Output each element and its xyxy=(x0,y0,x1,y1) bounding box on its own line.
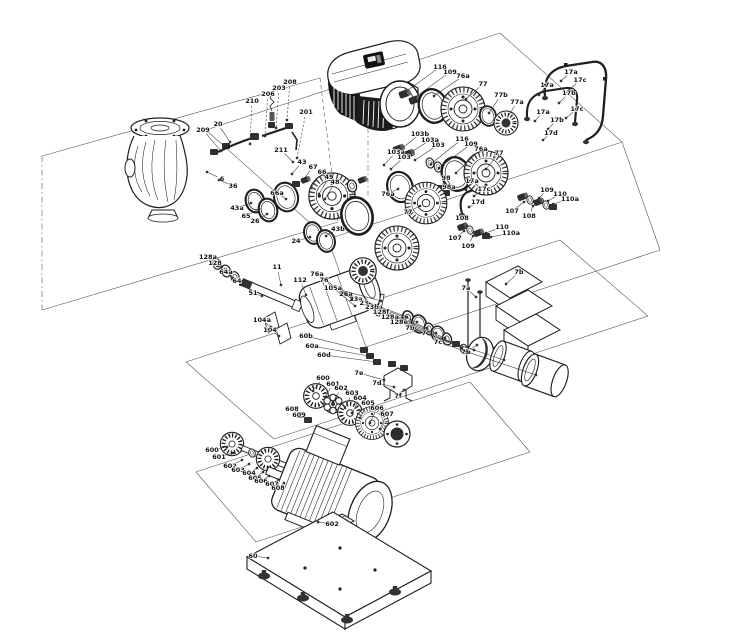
leader-anchor-dot xyxy=(538,197,540,199)
part-number-label: 43b xyxy=(331,225,345,233)
leader-anchor-dot xyxy=(280,284,282,286)
leader-anchor-dot xyxy=(351,298,353,300)
leader-anchor-dot xyxy=(379,428,381,430)
exploded-diagram: 2102062032082012112020963643a652666a4367… xyxy=(0,0,752,632)
part-number-label: 208 xyxy=(283,78,297,86)
callout-108: 108 xyxy=(522,205,536,220)
part-number-label: 76a xyxy=(456,72,469,80)
part-number-label: 17d xyxy=(471,198,485,206)
leader-line xyxy=(265,99,268,136)
leader-anchor-dot xyxy=(258,208,260,210)
part-number-label: 7b xyxy=(461,348,471,356)
callout-609: 609 xyxy=(292,411,308,421)
part-number-label: 108 xyxy=(522,212,536,220)
part-number-label: 43 xyxy=(297,158,306,166)
part-number-label: 109 xyxy=(461,242,475,250)
part-number-label: 26 xyxy=(250,217,260,225)
leader-anchor-dot xyxy=(351,412,353,414)
part-number-label: 109 xyxy=(443,68,457,76)
oring-cluster xyxy=(243,173,377,254)
leader-anchor-dot xyxy=(285,198,287,200)
part-number-label: 24 xyxy=(291,237,301,245)
leader-anchor-dot xyxy=(266,213,268,215)
leader-anchor-dot xyxy=(430,163,432,165)
leader-anchor-dot xyxy=(241,459,243,461)
part-number-label: 107 xyxy=(505,207,519,215)
part-number-label: 11 xyxy=(272,263,282,271)
diagram-canvas: 2102062032082012112020963643a652666a4367… xyxy=(0,0,752,632)
leader-line xyxy=(207,172,217,177)
part-number-label: 609 xyxy=(292,411,306,419)
callout-20: 20 xyxy=(213,120,231,143)
leader-anchor-dot xyxy=(534,120,536,122)
leader-anchor-dot xyxy=(305,294,307,296)
leader-anchor-dot xyxy=(419,205,421,207)
leader-anchor-dot xyxy=(473,195,475,197)
leader-anchor-dot xyxy=(465,189,467,191)
part-number-label: 211 xyxy=(274,146,288,154)
part-number-label: 110a xyxy=(561,195,579,203)
leader-anchor-dot xyxy=(249,143,251,145)
part-number-label: 77a xyxy=(510,98,523,106)
leader-anchor-dot xyxy=(383,379,385,381)
leader-anchor-dot xyxy=(306,419,308,421)
leader-line xyxy=(276,93,279,128)
leader-anchor-dot xyxy=(505,283,507,285)
leader-anchor-dot xyxy=(218,179,220,181)
part-number-label: 64 xyxy=(232,277,242,285)
leader-anchor-dot xyxy=(403,92,405,94)
part-number-label: 17d xyxy=(544,129,558,137)
part-number-label: 210 xyxy=(245,97,259,105)
callout-107: 107 xyxy=(448,230,465,242)
part-number-label: 607 xyxy=(380,410,394,418)
leader-anchor-dot xyxy=(397,188,399,190)
leader-anchor-dot xyxy=(542,139,544,141)
leader-anchor-dot xyxy=(476,344,478,346)
leader-anchor-dot xyxy=(301,180,303,182)
leader-anchor-dot xyxy=(256,467,258,469)
part-number-label: 48 xyxy=(330,178,340,186)
leader-anchor-dot xyxy=(560,80,562,82)
part-number-label: 17a xyxy=(540,81,553,89)
leader-anchor-dot xyxy=(475,296,477,298)
part-number-label: 77 xyxy=(403,208,412,216)
part-number-label: 110a xyxy=(502,229,520,237)
part-number-label: 20 xyxy=(213,120,223,128)
leader-anchor-dot xyxy=(466,225,468,227)
part-number-label: 7 xyxy=(422,329,427,337)
vent-valve xyxy=(268,94,275,128)
leader-anchor-dot xyxy=(324,396,326,398)
leader-anchor-dot xyxy=(535,374,537,376)
leader-anchor-dot xyxy=(552,203,554,205)
leader-line xyxy=(391,160,400,169)
leader-anchor-dot xyxy=(226,446,228,448)
leader-anchor-dot xyxy=(292,161,294,163)
part-number-label: 104 xyxy=(263,326,277,334)
leader-anchor-dot xyxy=(461,347,463,349)
part-number-label: 602 xyxy=(325,520,339,528)
leader-anchor-dot xyxy=(264,135,266,137)
leader-anchor-dot xyxy=(248,463,250,465)
leader-anchor-dot xyxy=(317,521,319,523)
leader-anchor-dot xyxy=(532,205,534,207)
leader-anchor-dot xyxy=(444,191,446,193)
leader-anchor-dot xyxy=(250,202,252,204)
leader-line xyxy=(287,87,290,120)
part-number-label: 17b xyxy=(562,89,576,97)
part-number-label: 17c xyxy=(478,185,491,193)
part-number-label: 60b xyxy=(299,332,313,340)
part-number-label: 76 xyxy=(319,276,329,284)
leader-line xyxy=(206,134,221,151)
callout-17c: 17c xyxy=(565,105,584,119)
leader-anchor-dot xyxy=(463,230,465,232)
part-number-label: 66a xyxy=(270,189,283,197)
part-number-label: 112 xyxy=(293,276,307,284)
callout-7a: 7a xyxy=(462,284,478,298)
part-number-label: 51 xyxy=(248,289,258,297)
callout-43: 43 xyxy=(291,158,307,175)
leader-anchor-dot xyxy=(403,389,405,391)
leader-anchor-dot xyxy=(291,173,293,175)
leader-anchor-dot xyxy=(262,471,264,473)
leader-anchor-dot xyxy=(472,235,474,237)
part-number-label: 36 xyxy=(228,182,238,190)
motor-top-unit xyxy=(328,41,420,131)
leader-line xyxy=(278,272,281,285)
leader-anchor-dot xyxy=(275,127,277,129)
part-number-label: 17c xyxy=(574,76,587,84)
callout-201: 201 xyxy=(296,108,313,159)
leader-anchor-dot xyxy=(206,171,208,173)
callout-17d: 17d xyxy=(468,198,485,208)
callout-211: 211 xyxy=(274,146,294,163)
part-number-label: 7c xyxy=(434,338,443,346)
leader-anchor-dot xyxy=(416,321,418,323)
part-number-label: 6 xyxy=(220,175,225,183)
leader-anchor-dot xyxy=(232,452,234,454)
callout-109: 109 xyxy=(461,235,475,250)
callout-11: 11 xyxy=(272,263,282,286)
part-number-label: 601 xyxy=(212,453,226,461)
callout-17a: 17a xyxy=(534,108,550,122)
leader-line xyxy=(384,156,393,165)
leader-anchor-dot xyxy=(220,150,222,152)
part-number-label: 128 xyxy=(208,259,222,267)
part-number-label: 67 xyxy=(308,163,317,171)
leader-anchor-dot xyxy=(267,557,269,559)
part-number-label: 60d xyxy=(317,351,331,359)
leader-anchor-dot xyxy=(558,102,560,104)
part-number-label: 108 xyxy=(455,214,469,222)
part-number-label: 109 xyxy=(540,186,554,194)
leader-anchor-dot xyxy=(310,187,312,189)
part-number-label: 77 xyxy=(494,149,503,157)
part-number-label: 105a xyxy=(324,284,342,292)
baseplate xyxy=(247,512,431,629)
part-number-label: 77 xyxy=(478,80,487,88)
part-number-label: 60 xyxy=(248,552,258,560)
part-number-label: 7b xyxy=(514,268,524,276)
part-number-label: 7a xyxy=(462,284,471,292)
leader-anchor-dot xyxy=(332,401,334,403)
part-number-label: 76a xyxy=(381,190,394,198)
leader-anchor-dot xyxy=(359,417,361,419)
part-number-label: 17a xyxy=(465,177,478,185)
leader-anchor-dot xyxy=(505,119,507,121)
part-number-label: 7b xyxy=(405,324,415,332)
leader-anchor-dot xyxy=(523,201,525,203)
part-number-label: 17a xyxy=(564,68,577,76)
leader-anchor-dot xyxy=(268,475,270,477)
leader-anchor-dot xyxy=(503,359,505,361)
callout-17b: 17b xyxy=(558,89,576,104)
part-number-label: 98 xyxy=(441,174,451,182)
callout-208: 208 xyxy=(283,78,297,121)
leader-anchor-dot xyxy=(309,236,311,238)
leader-anchor-dot xyxy=(485,168,487,170)
leader-anchor-dot xyxy=(318,193,320,195)
leader-anchor-dot xyxy=(325,235,327,237)
leader-anchor-dot xyxy=(376,361,378,363)
part-number-label: 209 xyxy=(196,126,210,134)
leader-anchor-dot xyxy=(261,295,263,297)
leader-anchor-dot xyxy=(465,98,467,100)
callout-608: 608 xyxy=(271,482,285,492)
pump-head xyxy=(125,118,189,222)
leader-anchor-dot xyxy=(344,407,346,409)
leader-line xyxy=(297,117,305,158)
part-number-label: 107 xyxy=(448,234,462,242)
leader-anchor-dot xyxy=(383,164,385,166)
part-number-label: 7d xyxy=(372,379,382,387)
leader-line xyxy=(292,166,299,174)
leader-anchor-dot xyxy=(380,300,382,302)
leader-anchor-dot xyxy=(414,159,416,161)
leader-line xyxy=(221,128,230,142)
leader-anchor-dot xyxy=(362,349,364,351)
callout-109: 109 xyxy=(538,186,554,199)
part-number-label: 77b xyxy=(494,91,508,99)
part-number-label: 7e xyxy=(355,369,365,377)
part-number-label: 17c xyxy=(571,105,584,113)
leader-anchor-dot xyxy=(547,200,549,202)
part-number-label: 98a xyxy=(442,183,455,191)
part-number-label: 7f xyxy=(394,392,402,400)
part-number-label: 103 xyxy=(397,153,411,161)
leader-line xyxy=(285,154,293,162)
part-number-label: 43a xyxy=(230,204,243,212)
part-number-label: 64a xyxy=(219,268,232,276)
part-number-label: 103 xyxy=(431,141,445,149)
leader-anchor-dot xyxy=(488,112,490,114)
part-number-label: 104a xyxy=(253,316,271,324)
leader-anchor-dot xyxy=(412,98,414,100)
leader-anchor-dot xyxy=(368,355,370,357)
part-number-label: 60a xyxy=(305,342,318,350)
leader-anchor-dot xyxy=(369,422,371,424)
leader-anchor-dot xyxy=(354,305,356,307)
leader-anchor-dot xyxy=(433,95,435,97)
part-number-label: 17b xyxy=(550,116,564,124)
leader-anchor-dot xyxy=(312,390,314,392)
callout-209: 209 xyxy=(196,126,222,152)
leader-anchor-dot xyxy=(324,198,326,200)
part-number-label: 201 xyxy=(299,108,313,116)
part-number-label: 76a xyxy=(474,145,487,153)
leader-anchor-dot xyxy=(485,232,487,234)
leader-anchor-dot xyxy=(286,119,288,121)
leader-anchor-dot xyxy=(278,335,280,337)
leader-anchor-dot xyxy=(438,167,440,169)
leader-anchor-dot xyxy=(538,94,540,96)
leader-anchor-dot xyxy=(565,117,567,119)
leader-anchor-dot xyxy=(390,168,392,170)
part-number-label: 608 xyxy=(271,484,285,492)
part-number-label: 17a xyxy=(536,108,549,116)
leader-anchor-dot xyxy=(490,236,492,238)
leader-anchor-dot xyxy=(393,386,395,388)
leader-anchor-dot xyxy=(455,172,457,174)
callout-17d: 17d xyxy=(542,129,558,141)
leader-anchor-dot xyxy=(468,206,470,208)
leader-anchor-dot xyxy=(229,141,231,143)
